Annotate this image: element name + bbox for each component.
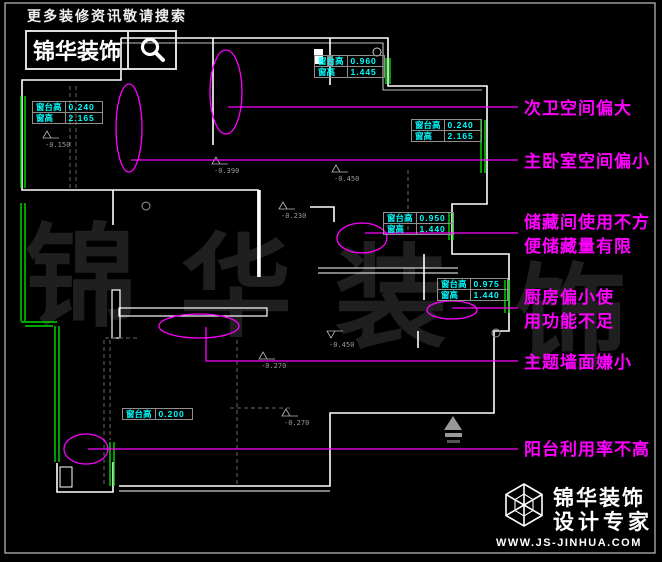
svg-text:-0.450: -0.450: [334, 175, 359, 183]
annotation-marks: [64, 50, 518, 464]
cad-floorplan-screenshot: { "header": { "slogan": "更多装修资讯敬请搜索", "b…: [0, 0, 662, 562]
brand-name: 锦华装饰: [27, 32, 129, 68]
leader-line: [206, 327, 518, 361]
entry-arrow-icon: [444, 416, 462, 443]
dim-table-bedroom2-window: 窗台高0.240 窗高2.165: [411, 119, 482, 142]
dim-table-storage-window: 窗台高0.950 窗高1.440: [383, 212, 454, 235]
door-knob-icon: [142, 202, 150, 210]
level-marker: -0.150: [43, 131, 70, 149]
annotation-label-master-bedroom: 主卧室空间偏小: [524, 150, 650, 174]
level-markers: -0.150 -0.390 -0.450 -0.230 -0.270 -0.27…: [43, 131, 359, 427]
header-slogan: 更多装修资讯敬请搜索: [27, 6, 187, 26]
cube-logo-icon: [500, 481, 548, 534]
annotation-label-feature-wall: 主题墙面嫌小: [524, 351, 632, 375]
svg-text:-0.270: -0.270: [261, 362, 286, 370]
footer-tagline: 设计专家: [553, 506, 653, 536]
brand-logo-box: 锦华装饰: [25, 30, 177, 70]
svg-text:-0.390: -0.390: [214, 167, 239, 175]
level-marker: -0.270: [282, 409, 309, 427]
dim-table-bath-window: 窗台高0.960 窗高1.445: [314, 55, 385, 78]
svg-text:-0.270: -0.270: [284, 419, 309, 427]
svg-text:-0.150: -0.150: [45, 141, 70, 149]
annotation-label-second-bath: 次卫空间偏大: [524, 97, 632, 121]
level-marker: -0.230: [279, 202, 306, 220]
annotation-label-balcony: 阳台利用率不高: [524, 438, 650, 462]
footer-website-url: WWW.JS-JINHUA.COM: [496, 537, 642, 549]
annotation-ellipse-feature-wall: [159, 314, 239, 338]
annotation-label-storage: 储藏间使用不方 便储藏量有限: [524, 211, 650, 259]
dim-table-kitchen-window: 窗台高0.975 窗高1.440: [437, 278, 508, 301]
svg-text:-0.230: -0.230: [281, 212, 306, 220]
dim-table-master-window: 窗台高0.240 窗高2.165: [32, 101, 103, 124]
dashed-guide-lines: [70, 86, 408, 486]
dim-table-balcony-window: 窗台高0.200: [122, 408, 193, 420]
floor-plan-drawing: -0.150 -0.390 -0.450 -0.230 -0.270 -0.27…: [0, 0, 662, 562]
annotation-ellipse-second-bath: [210, 50, 242, 134]
annotation-ellipse-storage: [337, 223, 387, 253]
annotation-label-kitchen: 厨房偏小使 用功能不足: [524, 286, 614, 334]
level-marker: -0.450: [327, 331, 354, 349]
level-marker: -0.450: [332, 165, 359, 183]
annotation-ellipse-kitchen: [427, 301, 477, 319]
search-icon: [129, 32, 175, 68]
annotation-ellipse-master-bedroom: [116, 84, 142, 172]
svg-text:-0.450: -0.450: [329, 341, 354, 349]
